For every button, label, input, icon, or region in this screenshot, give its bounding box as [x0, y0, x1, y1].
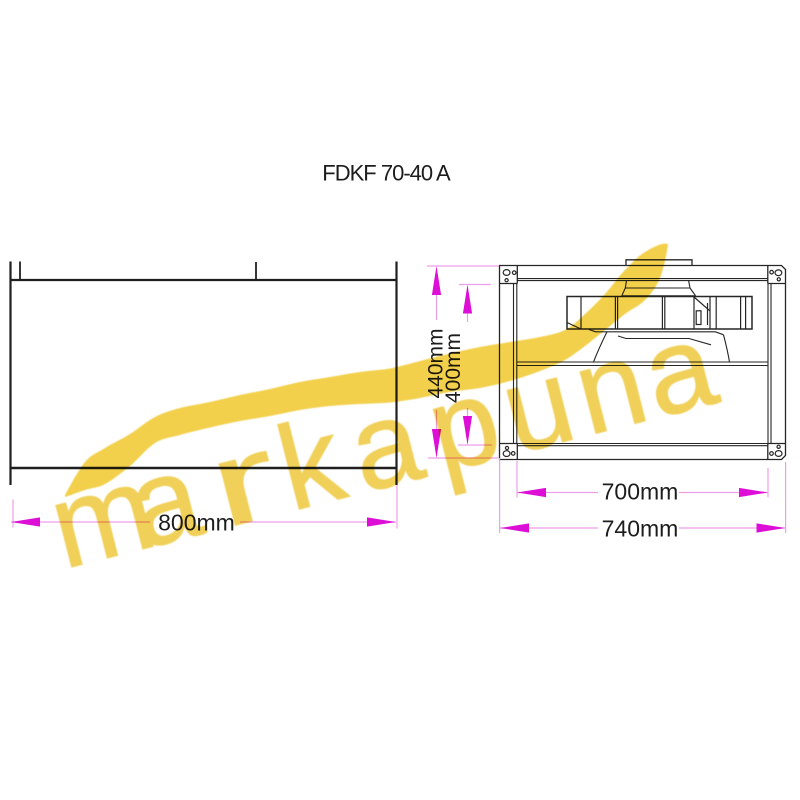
svg-text:700mm: 700mm — [602, 479, 679, 505]
svg-text:FDKF 70-40 A: FDKF 70-40 A — [322, 161, 451, 186]
svg-text:740mm: 740mm — [602, 516, 679, 542]
